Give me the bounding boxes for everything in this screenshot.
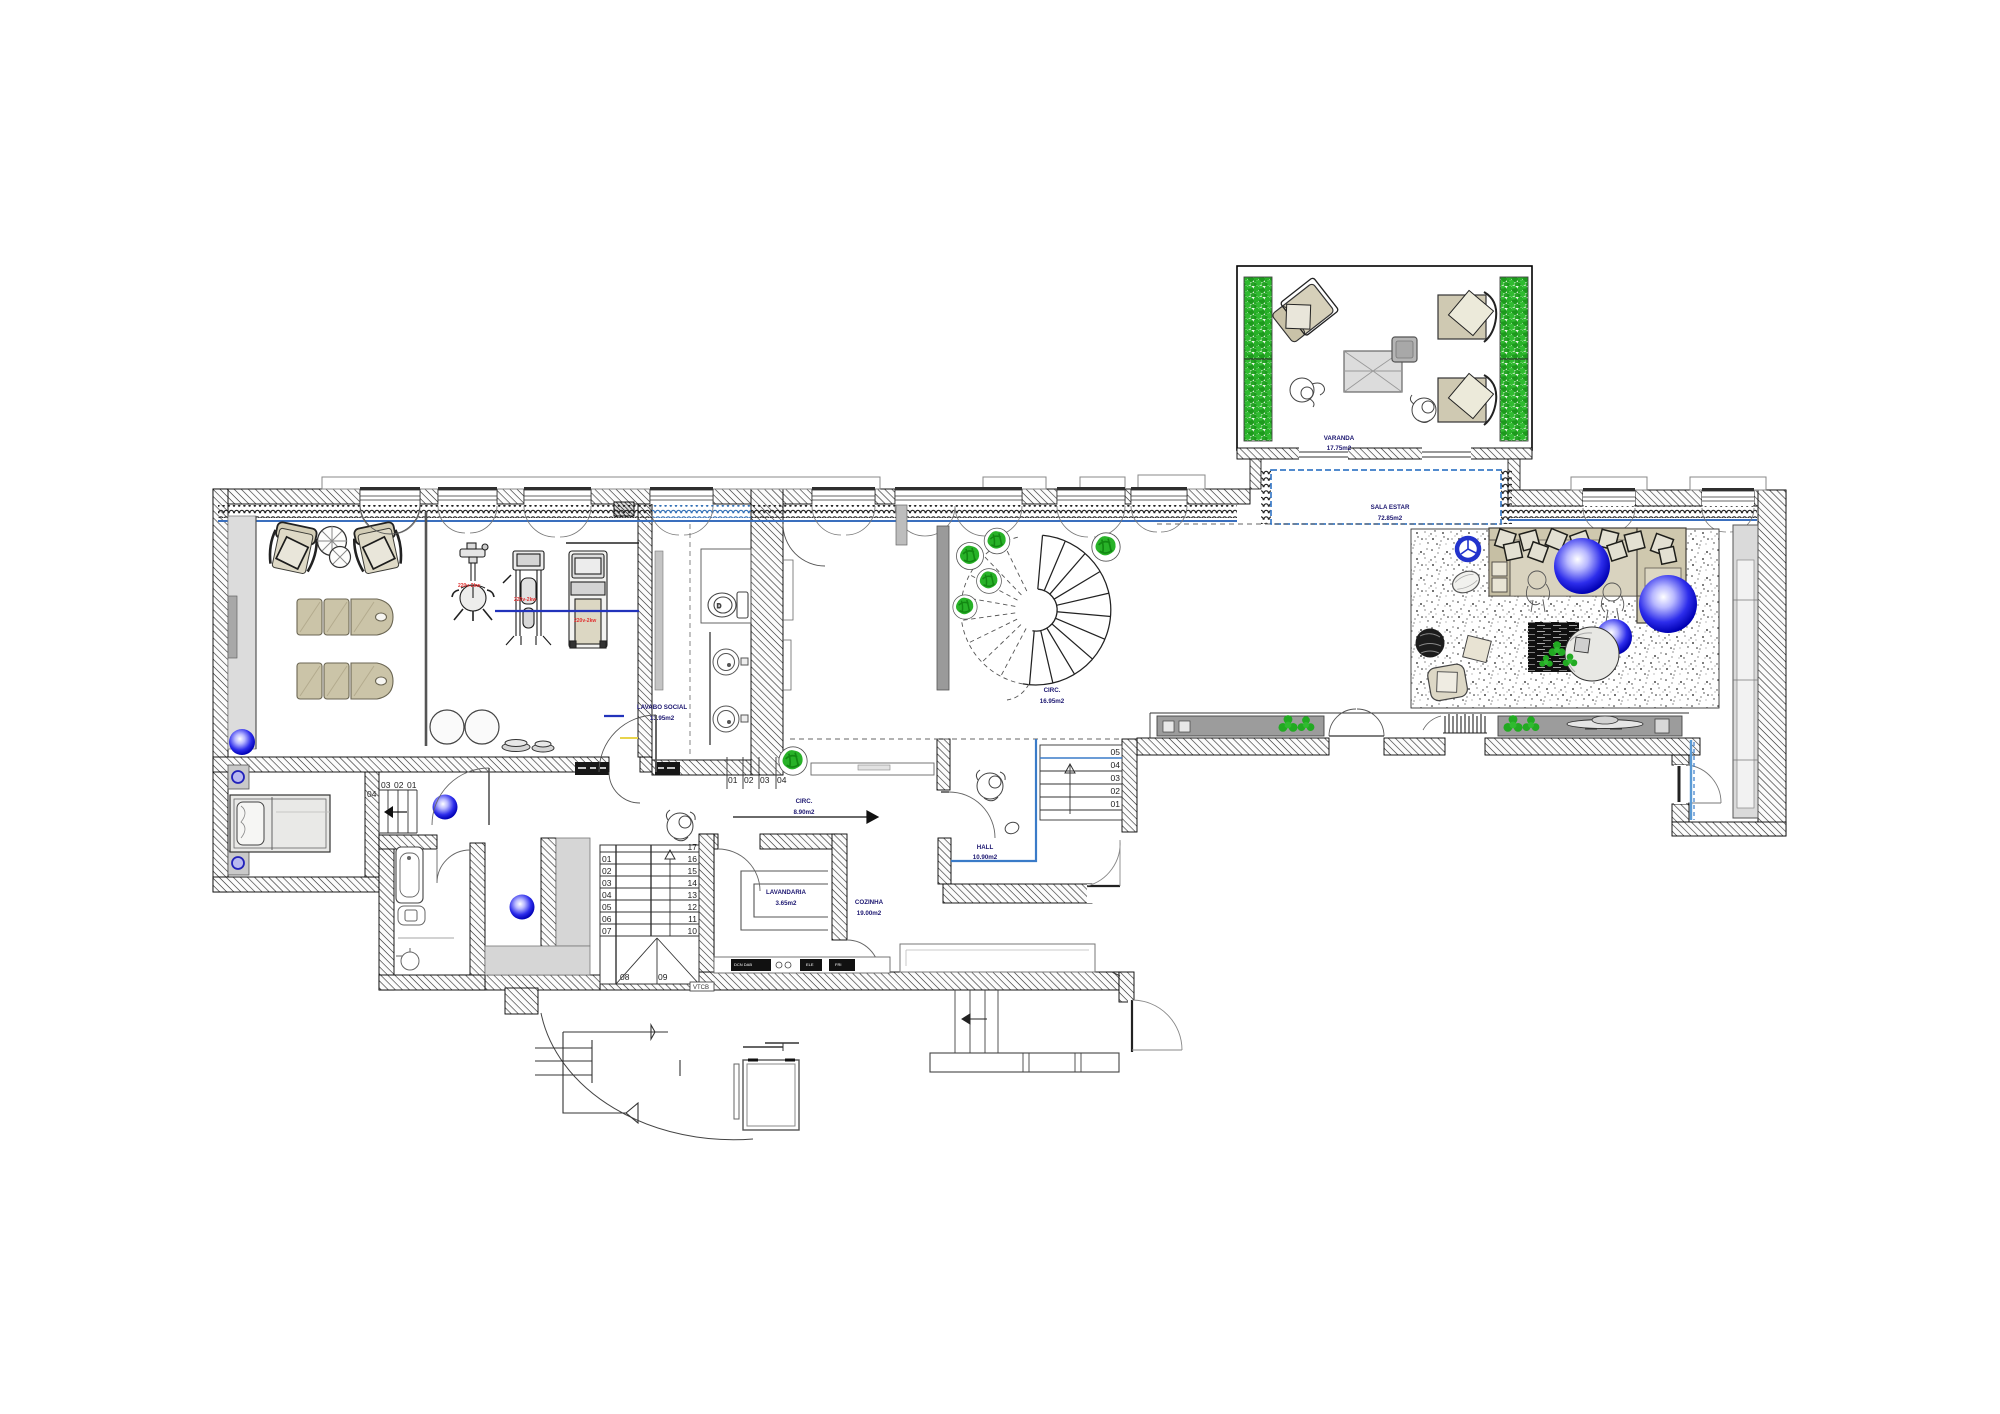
svg-text:15: 15 bbox=[688, 866, 698, 876]
svg-text:13: 13 bbox=[688, 890, 698, 900]
svg-text:04: 04 bbox=[777, 775, 787, 785]
svg-text:05: 05 bbox=[602, 902, 612, 912]
svg-text:3.65m2: 3.65m2 bbox=[776, 900, 798, 907]
svg-text:05: 05 bbox=[1111, 747, 1121, 757]
svg-text:ELE: ELE bbox=[806, 962, 814, 967]
svg-text:D: D bbox=[717, 604, 722, 610]
svg-text:220v-2kw: 220v-2kw bbox=[458, 583, 480, 589]
svg-text:03: 03 bbox=[381, 780, 391, 790]
svg-text:08: 08 bbox=[620, 972, 630, 982]
svg-text:FRI: FRI bbox=[835, 962, 841, 967]
svg-text:01: 01 bbox=[1111, 799, 1121, 809]
svg-text:04: 04 bbox=[602, 890, 612, 900]
svg-text:CIRC.: CIRC. bbox=[1044, 687, 1061, 694]
svg-text:220v-2kw: 220v-2kw bbox=[514, 597, 536, 603]
svg-text:17: 17 bbox=[688, 842, 698, 852]
svg-text:220v-2kw: 220v-2kw bbox=[574, 618, 596, 624]
svg-text:11: 11 bbox=[688, 914, 697, 924]
svg-text:02: 02 bbox=[1111, 786, 1121, 796]
svg-text:12: 12 bbox=[688, 902, 698, 912]
svg-text:02: 02 bbox=[602, 866, 612, 876]
svg-text:19.00m2: 19.00m2 bbox=[857, 910, 882, 917]
svg-text:02: 02 bbox=[744, 775, 754, 785]
svg-text:CIRC.: CIRC. bbox=[796, 798, 813, 805]
svg-text:06: 06 bbox=[602, 914, 612, 924]
svg-text:COZINHA: COZINHA bbox=[855, 899, 884, 906]
svg-text:09: 09 bbox=[658, 972, 668, 982]
svg-text:LAVABO SOCIAL: LAVABO SOCIAL bbox=[637, 704, 688, 711]
svg-text:04: 04 bbox=[1111, 760, 1121, 770]
svg-text:07: 07 bbox=[602, 926, 612, 936]
svg-text:DCN DAB: DCN DAB bbox=[734, 962, 752, 967]
svg-text:8.90m2: 8.90m2 bbox=[794, 809, 816, 816]
svg-text:72.85m2: 72.85m2 bbox=[1378, 515, 1403, 522]
svg-text:HALL: HALL bbox=[977, 844, 994, 851]
svg-text:13.95m2: 13.95m2 bbox=[650, 715, 675, 722]
svg-text:17.75m2: 17.75m2 bbox=[1327, 445, 1352, 452]
svg-text:VARANDA: VARANDA bbox=[1324, 435, 1355, 442]
svg-text:02: 02 bbox=[394, 780, 404, 790]
svg-text:01: 01 bbox=[602, 854, 612, 864]
svg-text:14: 14 bbox=[688, 878, 698, 888]
svg-text:01: 01 bbox=[728, 775, 738, 785]
svg-text:VTCB: VTCB bbox=[693, 985, 709, 991]
svg-text:16.95m2: 16.95m2 bbox=[1040, 698, 1065, 705]
svg-text:03: 03 bbox=[760, 775, 770, 785]
svg-text:01: 01 bbox=[407, 780, 417, 790]
svg-text:03: 03 bbox=[1111, 773, 1121, 783]
svg-text:10: 10 bbox=[688, 926, 698, 936]
svg-text:LAVANDARIA: LAVANDARIA bbox=[766, 889, 807, 896]
svg-text:16: 16 bbox=[688, 854, 698, 864]
svg-text:SALA ESTAR: SALA ESTAR bbox=[1371, 504, 1410, 511]
svg-text:04: 04 bbox=[367, 789, 377, 799]
svg-text:03: 03 bbox=[602, 878, 612, 888]
